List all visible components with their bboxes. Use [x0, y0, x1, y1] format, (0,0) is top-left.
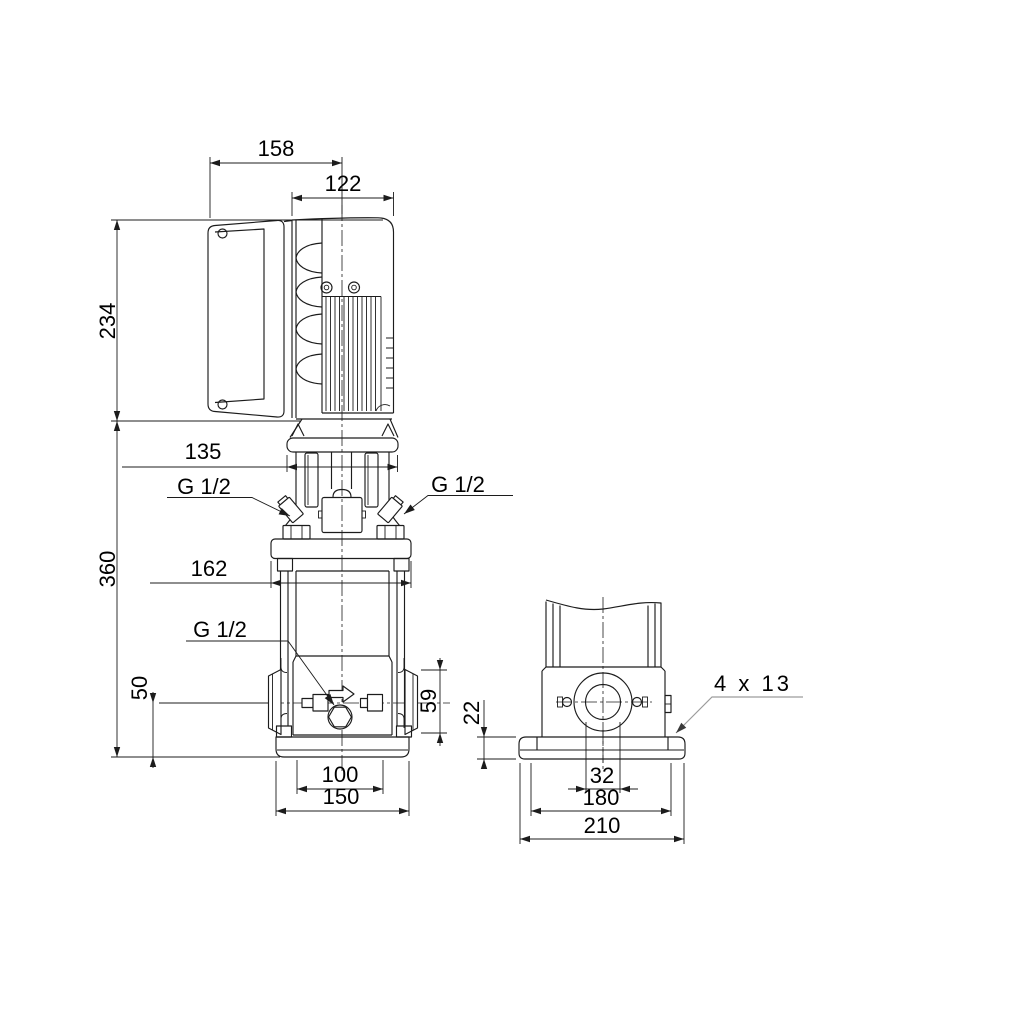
dim-label-4x13: 4 x 13: [714, 671, 792, 696]
pump-dimension-drawing: 158 122 234 360 135: [0, 0, 1024, 1024]
side-view: [519, 597, 685, 770]
pump-body: [269, 571, 418, 735]
dim-label-150: 150: [323, 784, 360, 809]
dim-label-g12-left: G 1/2: [177, 474, 231, 499]
suction-port-flange-left: [269, 670, 282, 735]
flow-direction-arrow: [329, 686, 354, 702]
coupling-window-right: [365, 453, 378, 507]
motor-control-box: [208, 220, 284, 417]
dim-label-234: 234: [95, 303, 120, 340]
dim-motor-diameter: 122: [292, 171, 394, 216]
motor-screws: [321, 282, 360, 293]
dim-label-135: 135: [185, 439, 222, 464]
motor-adapter: [287, 419, 398, 452]
sleeve-side: [542, 600, 665, 737]
gauge-plug-left: [276, 494, 303, 523]
dim-total-width: 158: [210, 136, 342, 218]
dim-label-210: 210: [584, 813, 621, 838]
drain-plug: [328, 705, 352, 729]
dim-port-height: 50: [127, 676, 268, 768]
dimension-annotations: 158 122 234 360 135: [95, 136, 803, 844]
pump-head-flange: [271, 539, 411, 571]
stool-top-plate: [287, 438, 398, 452]
dim-label-360: 360: [95, 551, 120, 588]
dim-port-flange-height: 59: [416, 658, 447, 746]
centerlines-side: [556, 597, 652, 770]
control-box-screw-hole-top: [218, 229, 227, 238]
dim-pump-height: 360: [95, 421, 280, 757]
label-drain-port: G 1/2: [186, 617, 337, 707]
label-gauge-port-right: G 1/2: [402, 472, 513, 517]
motor-cooling-fins: [322, 297, 381, 412]
pump-base-front: [276, 726, 412, 757]
dim-label-22: 22: [459, 701, 484, 725]
dim-label-162: 162: [191, 556, 228, 581]
motor-vent-slots: [386, 338, 393, 388]
dim-motor-flange-width: 135: [122, 439, 398, 472]
baseplate-side: [519, 737, 685, 759]
control-box-screw-hole-bottom: [218, 400, 227, 409]
motor: [284, 218, 394, 419]
dim-label-122: 122: [325, 171, 362, 196]
dim-label-g12-drain: G 1/2: [193, 617, 247, 642]
dim-label-180: 180: [583, 785, 620, 810]
coupling-window-left: [305, 453, 318, 507]
dim-label-158: 158: [258, 136, 295, 161]
break-line: [546, 600, 661, 610]
front-view: [208, 205, 450, 774]
label-mounting-holes: 4 x 13: [674, 671, 803, 735]
coupling-section: [285, 452, 400, 533]
cable-gland-bumps: [296, 243, 322, 384]
dim-label-g12-right: G 1/2: [431, 472, 485, 497]
dim-label-59: 59: [416, 689, 441, 713]
gauge-plug-right: [378, 494, 405, 523]
label-gauge-port-left: G 1/2: [167, 474, 292, 519]
technical-drawing-canvas: 158 122 234 360 135: [0, 0, 1024, 1024]
dim-label-50: 50: [127, 676, 152, 700]
dim-baseplate-height: 22: [459, 700, 516, 769]
